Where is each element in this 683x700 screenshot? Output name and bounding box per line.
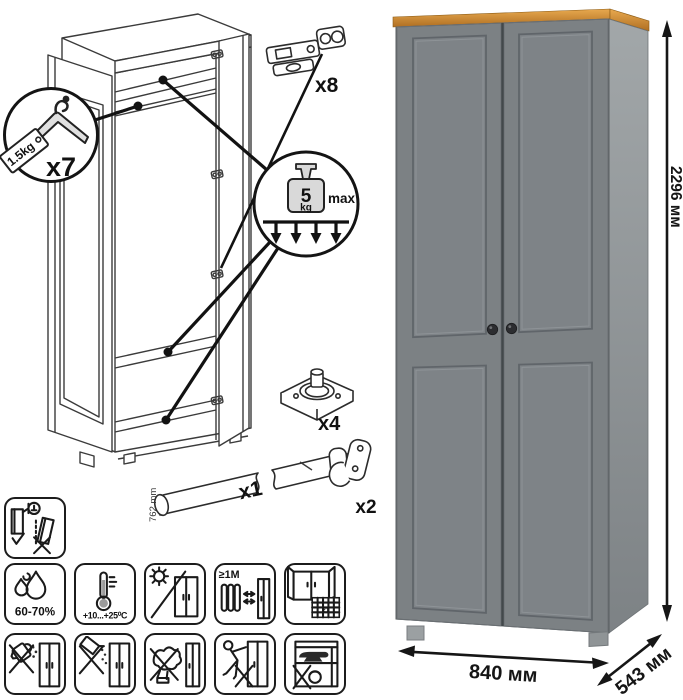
foot-part: x4 [281,369,353,435]
weight-unit: kg [300,203,312,214]
no-heavy-items-icon [284,633,346,695]
no-solvents-icon [144,633,206,695]
hook-count-label: x2 [355,497,376,518]
humidity-glyph: 60-70% [7,566,63,622]
temperature-label: +10...+25⁰C [83,610,128,620]
humidity-label: 60-70% [15,605,56,618]
rod-count-label: x1 [237,477,265,504]
heat-distance-label: ≥1М [219,569,240,581]
anti-tip-anchor-glyph [7,500,63,556]
product-render [393,9,649,647]
no-direct-sunlight-icon [144,563,206,625]
depth-dimension: 543 мм [612,643,676,700]
no-dragging-icon [214,633,276,695]
height-dimension: 2296 мм [667,166,683,228]
rod-length-label: 762 mm [148,488,159,522]
heat-distance-icon: ≥1М [214,563,276,625]
left-door-knob [487,324,497,334]
no-abrasives-icon [74,633,136,695]
hanger-count-label: x7 [46,152,76,182]
temperature-glyph: +10...+25⁰C [77,566,133,622]
ventilation-day: 21 [322,608,329,614]
humidity-icon: 60-70% [4,563,66,625]
no-dragging-glyph [217,636,273,692]
no-liquids-icon [4,633,66,695]
hanger-callout: 1.5kg x7 [0,89,98,183]
no-solvents-glyph [147,636,203,692]
no-abrasives-glyph [77,636,133,692]
width-dimension: 840 мм [468,661,538,687]
product-sheet: x8 x4 x1 762 mm x2 [0,0,683,700]
radiator-distance-glyph: ≥1М [217,566,273,622]
no-liquids-glyph [7,636,63,692]
temperature-icon: +10...+25⁰C [74,563,136,625]
no-heavy-items-glyph [287,636,343,692]
right-door-knob [506,323,516,333]
wardrobe-side-panel [609,19,648,633]
load-callout: 5 kg max [254,152,358,256]
anti-tip-anchor-icon [4,497,66,559]
ventilation-icon: 21 [284,563,346,625]
hinge-count-label: x8 [315,74,339,97]
window-calendar-glyph: 21 [287,566,343,622]
max-label: max [328,191,356,206]
rod-part: x1 762 mm [148,453,353,522]
sun-wardrobe-glyph [147,566,203,622]
foot-count-label: x4 [318,413,341,435]
hook-part: x2 [327,435,377,518]
wardrobe-wireframe [48,14,251,467]
